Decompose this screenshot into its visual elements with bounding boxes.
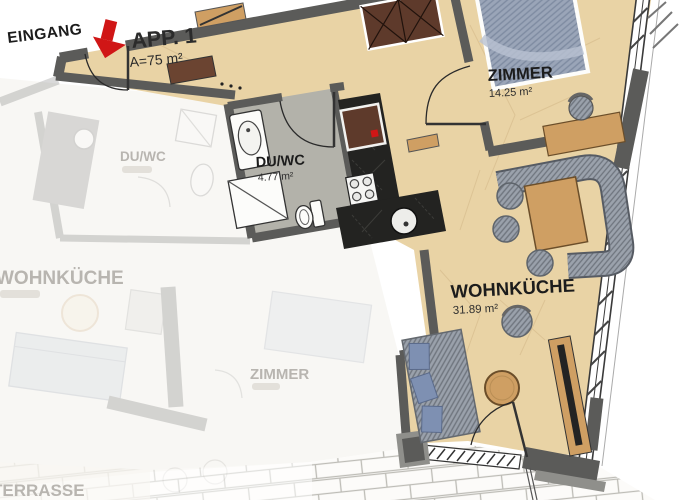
kitchen-sink-drain — [404, 222, 409, 227]
stove — [346, 173, 379, 206]
room-area-wohnkueche: 31.89 m² — [453, 303, 499, 317]
adjacent-room-label-zimmer: ZIMMER — [250, 366, 309, 383]
room-area-zimmer: 14.25 m² — [489, 86, 533, 100]
room-area-duwc: 4.77 m² — [258, 170, 295, 184]
lounge-chair — [502, 306, 532, 337]
adjacent-round-table — [62, 295, 98, 331]
adjacent-room-label-wohnkueche: WOHNKÜCHE — [0, 268, 124, 289]
floor-plan-canvas: DU/WC WOHNKÜCHE ZIMMER TERRASSE — [0, 0, 700, 500]
facade-section-hatch — [648, 2, 678, 48]
adjacent-room-label-terrasse: TERRASSE — [0, 481, 85, 500]
adjacent-area-smudge — [252, 383, 280, 390]
adjacent-kitchen-sink — [74, 129, 94, 149]
wall-right-solid-lower — [591, 398, 597, 450]
room-label-duwc: DU/WC — [255, 152, 305, 171]
fridge — [341, 104, 386, 150]
dining-chair — [493, 216, 519, 242]
adjacent-area-smudge — [0, 290, 40, 298]
room-label-zimmer: ZIMMER — [487, 64, 553, 85]
kitchen-sink — [391, 208, 417, 234]
adjacent-room-label-duwc: DU/WC — [120, 149, 166, 164]
adjacent-chair — [125, 290, 166, 335]
entrance-label: EINGANG — [6, 21, 83, 47]
dining-chair — [497, 183, 523, 209]
dining-chair — [527, 250, 553, 276]
counter-red-item — [371, 129, 379, 137]
floor-plan-svg: DU/WC WOHNKÜCHE ZIMMER TERRASSE — [0, 0, 700, 500]
coffee-table — [485, 371, 519, 405]
dining-table — [524, 177, 587, 251]
desk-chair — [569, 94, 593, 120]
adjacent-area-smudge — [122, 166, 152, 173]
